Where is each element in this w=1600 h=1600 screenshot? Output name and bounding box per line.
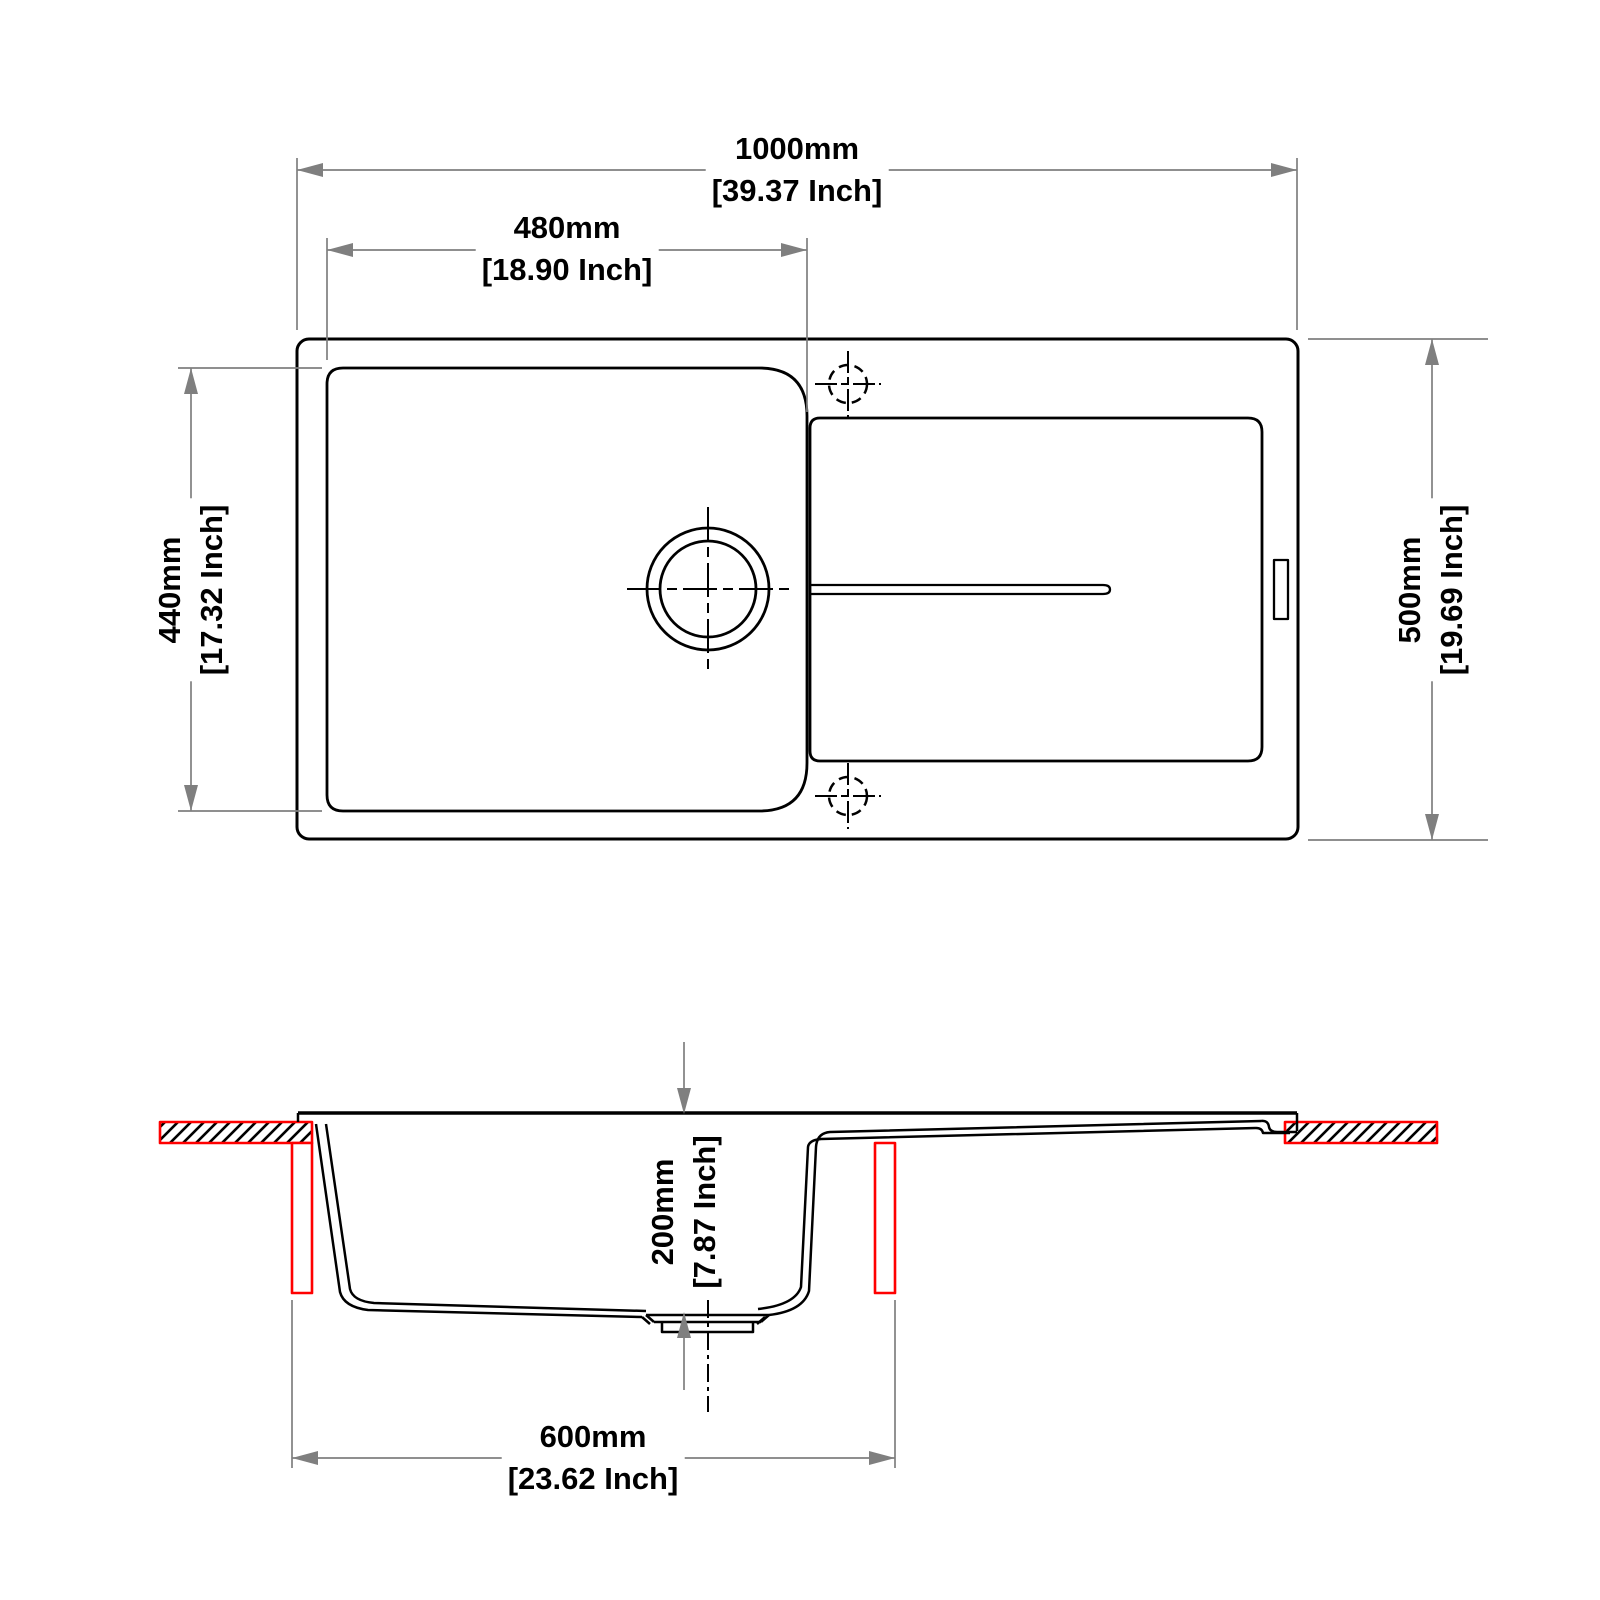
dim-inch: [17.32 Inch] — [191, 505, 233, 676]
dim-inch: [7.87 Inch] — [684, 1135, 726, 1288]
dim-bowl-length-label: 440mm [17.32 Inch] — [148, 499, 234, 682]
dim-bowl-depth-label: 200mm [7.87 Inch] — [641, 1129, 727, 1294]
dim-inch: [18.90 Inch] — [482, 249, 653, 291]
bowl-outline — [327, 368, 807, 811]
countertop-hatch-right — [1285, 1122, 1437, 1143]
dim-overall-width-label: 1000mm [39.37 Inch] — [706, 127, 889, 213]
drainer-outline — [810, 418, 1262, 761]
cabinet-side-left — [292, 1143, 312, 1293]
dim-cabinet-width-label: 600mm [23.62 Inch] — [502, 1415, 685, 1501]
dim-mm: 200mm — [642, 1135, 684, 1288]
dim-inch: [19.69 Inch] — [1431, 505, 1473, 676]
dim-mm: 480mm — [482, 207, 653, 249]
dim-inch: [23.62 Inch] — [508, 1458, 679, 1500]
dim-inch: [39.37 Inch] — [712, 170, 883, 212]
top-view — [297, 339, 1298, 839]
cabinet-side-right — [875, 1143, 895, 1293]
dim-mm: 440mm — [149, 505, 191, 676]
section-view — [160, 1113, 1437, 1412]
dim-mm: 600mm — [508, 1416, 679, 1458]
dim-bowl-width-label: 480mm [18.90 Inch] — [476, 206, 659, 292]
countertop-hatch-left — [160, 1122, 312, 1143]
dim-mm: 500mm — [1389, 505, 1431, 676]
sink-technical-drawing: 1000mm [39.37 Inch] 480mm [18.90 Inch] 4… — [0, 0, 1600, 1600]
dim-overall-depth-label: 500mm [19.69 Inch] — [1388, 499, 1474, 682]
drawing-linework — [0, 0, 1600, 1600]
overflow-slot — [1274, 560, 1288, 619]
sink-section-profile — [298, 1113, 1297, 1332]
dim-mm: 1000mm — [712, 128, 883, 170]
